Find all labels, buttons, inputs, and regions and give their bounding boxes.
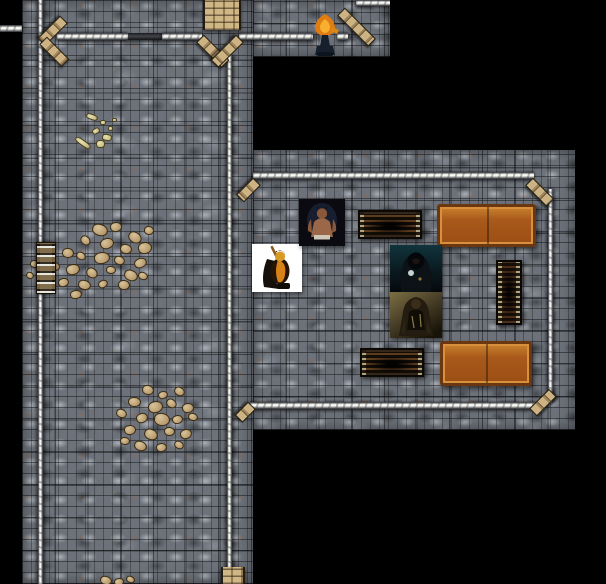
north-edge-wall-stub [356,0,390,6]
rubble-stone [144,226,154,235]
weathered-table-north[interactable] [358,210,422,239]
armored-brute-token[interactable] [390,292,442,338]
rubble-stone [100,120,106,125]
barbarian-token[interactable] [299,199,345,246]
cabinet-east[interactable] [496,260,522,325]
wooden-table-north[interactable] [437,204,536,247]
ladder-west-wall[interactable] [36,242,56,294]
west-hall-floor [22,0,253,584]
north-wall-east [239,33,313,40]
rubble-stone [62,248,74,258]
wooden-table-south[interactable] [440,341,532,386]
east-room-south-wall [250,402,536,409]
east-room-east-wall [548,189,553,403]
flaming-statue-token[interactable] [310,13,340,57]
north-wall-mid [162,33,202,40]
dungeon-map-stage [0,0,606,584]
hero-warrior-token[interactable] [252,244,302,292]
rubble-stone [106,266,116,274]
rubble-stone [118,280,130,290]
north-wall-west [57,33,128,40]
staircase-north[interactable] [203,0,241,30]
hooded-figure-token[interactable] [390,245,442,292]
east-room-north-wall [253,172,534,179]
weathered-table-south[interactable] [360,348,424,377]
staircase-south[interactable] [221,567,245,584]
rubble-stone [96,140,105,148]
west-edge-wall-stub [0,25,22,32]
rubble-stone [120,437,130,445]
rubble-stone [112,118,117,122]
rubble-stone [108,126,113,131]
west-hall-east-wall [227,55,232,584]
north-wall-gap-shadow [128,33,162,40]
rubble-stone [164,427,175,436]
rubble-stone [128,397,141,407]
